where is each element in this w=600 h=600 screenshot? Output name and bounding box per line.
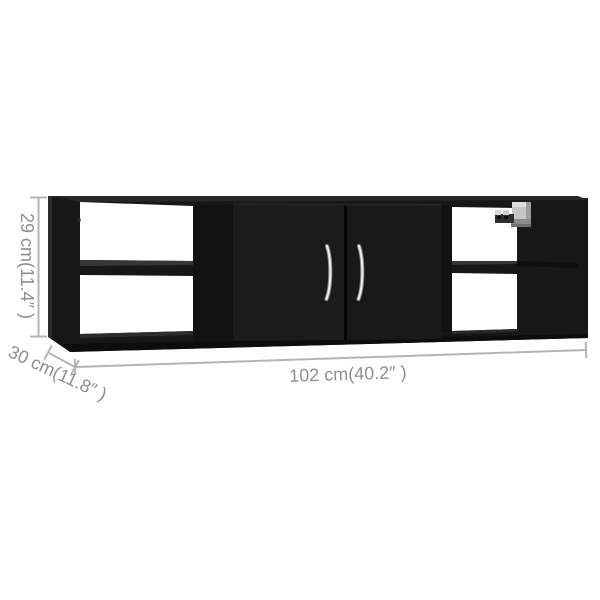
left-middle-shelf-edge bbox=[80, 260, 193, 266]
bracket-tab-1 bbox=[495, 210, 501, 215]
door-gap bbox=[344, 204, 347, 340]
opening-left-lower bbox=[80, 275, 193, 334]
bracket-slot-2 bbox=[504, 216, 508, 219]
width-cap-right bbox=[586, 342, 587, 358]
right-divider-shadow bbox=[441, 205, 452, 332]
shelf-left-edge bbox=[48, 196, 52, 338]
product-dimension-image: 29 cm(11.4″ ) 30 cm(11.8″ ) 102 cm(40.2″… bbox=[0, 0, 600, 600]
left-door bbox=[233, 203, 344, 341]
wall-shelf bbox=[48, 196, 588, 352]
bracket-step-shade bbox=[511, 224, 531, 227]
opening-left-upper bbox=[80, 202, 193, 261]
screw-dot bbox=[77, 218, 81, 222]
bracket-tab-2 bbox=[503, 210, 509, 215]
door-section bbox=[233, 203, 441, 341]
shelf-dimension-diagram: 29 cm(11.4″ ) 30 cm(11.8″ ) 102 cm(40.2″… bbox=[0, 0, 600, 600]
bracket-body-shade bbox=[526, 202, 531, 220]
height-dimension-label: 29 cm(11.4″ ) bbox=[17, 213, 37, 319]
bracket-slot-1 bbox=[497, 216, 501, 219]
width-dimension-label: 102 cm(40.2″ ) bbox=[289, 362, 407, 386]
left-divider-shadow bbox=[193, 204, 233, 342]
opening-right-lower bbox=[452, 273, 517, 331]
